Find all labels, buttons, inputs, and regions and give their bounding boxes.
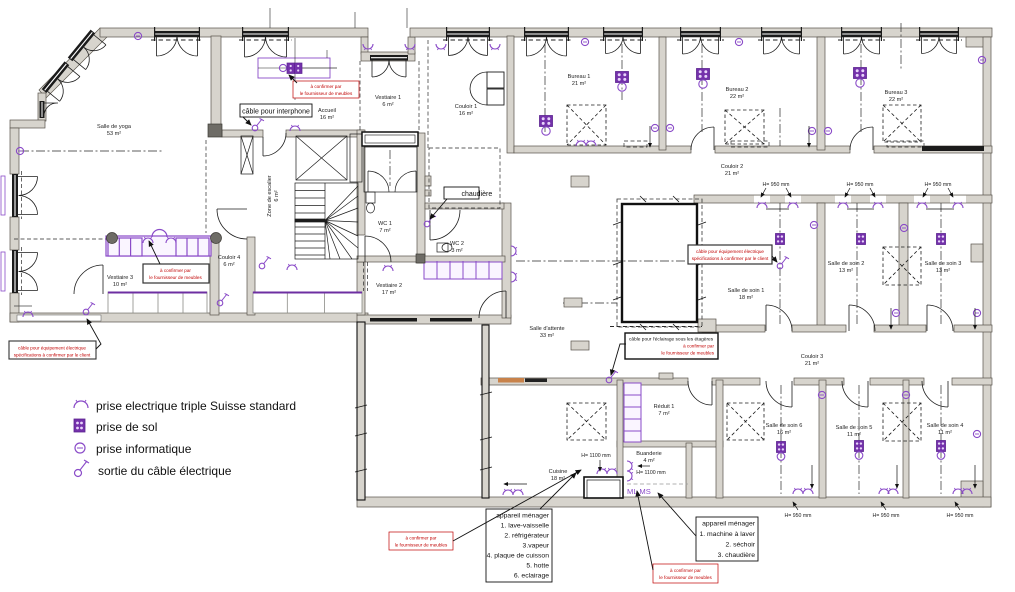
svg-text:prise de sol: prise de sol (96, 420, 157, 434)
svg-text:spécifications à confirmer par: spécifications à confirmer par le client (692, 256, 769, 261)
svg-text:H= 950 mm: H= 950 mm (847, 182, 874, 188)
svg-text:53 m²: 53 m² (107, 131, 121, 137)
svg-text:le fournisseur de meubles: le fournisseur de meubles (661, 351, 714, 356)
svg-text:à confirmer par: à confirmer par (683, 344, 714, 349)
svg-text:câble pour équipement électriq: câble pour équipement électrique (18, 346, 86, 351)
svg-text:H= 1100 mm: H= 1100 mm (636, 470, 665, 476)
svg-text:6 m²: 6 m² (223, 262, 234, 268)
svg-text:11 m²: 11 m² (938, 430, 952, 436)
svg-text:WC 1: WC 1 (378, 221, 392, 227)
svg-text:Salle de soin 2: Salle de soin 2 (828, 261, 865, 267)
svg-text:appareil ménager: appareil ménager (496, 513, 550, 520)
svg-text:à confirmer par: à confirmer par (406, 536, 437, 541)
svg-text:11 m²: 11 m² (847, 432, 861, 438)
svg-text:Salle d'attente: Salle d'attente (529, 326, 564, 332)
svg-text:H= 950 mm: H= 950 mm (925, 182, 952, 188)
svg-text:17 m²: 17 m² (382, 290, 396, 296)
svg-text:4. plaque de cuisson: 4. plaque de cuisson (487, 553, 550, 560)
svg-text:Réduit 1: Réduit 1 (654, 404, 675, 410)
svg-text:prise informatique: prise informatique (96, 442, 192, 456)
svg-text:7 m²: 7 m² (658, 411, 669, 417)
svg-text:22 m²: 22 m² (730, 94, 744, 100)
svg-text:câble pour l'éclairage sous le: câble pour l'éclairage sous les étagères (629, 337, 714, 343)
svg-text:Vestiaire 2: Vestiaire 2 (376, 283, 402, 289)
svg-text:5. hotte: 5. hotte (526, 563, 549, 570)
svg-text:6. eclairage: 6. eclairage (514, 573, 549, 580)
svg-text:18 m²: 18 m² (739, 295, 753, 301)
svg-text:Salle de soin 3: Salle de soin 3 (925, 261, 962, 267)
svg-text:prise electrique triple Suisse: prise electrique triple Suisse standard (96, 399, 296, 413)
svg-text:H= 950 mm: H= 950 mm (763, 182, 790, 188)
svg-text:3.vapeur: 3.vapeur (523, 543, 550, 550)
svg-text:Couloir 3: Couloir 3 (801, 354, 823, 360)
svg-text:Salle de yoga: Salle de yoga (97, 124, 132, 130)
svg-text:câble pour équipement électriq: câble pour équipement électrique (696, 249, 764, 254)
svg-text:4 m²: 4 m² (643, 458, 654, 464)
svg-text:H= 950 mm: H= 950 mm (947, 513, 974, 519)
svg-text:Zone de escalier: Zone de escalier (267, 175, 273, 216)
svg-text:1. lave-vaisselle: 1. lave-vaisselle (501, 523, 550, 530)
svg-text:à confirmer par: à confirmer par (311, 84, 342, 89)
svg-text:2. séchoir: 2. séchoir (726, 542, 756, 549)
svg-text:6 m²: 6 m² (274, 190, 280, 201)
svg-text:WC 2: WC 2 (450, 241, 464, 247)
svg-text:chaudière: chaudière (462, 191, 493, 198)
svg-text:Couloir 4: Couloir 4 (218, 255, 240, 261)
svg-text:Couloir 1: Couloir 1 (455, 104, 477, 110)
svg-text:2. réfrigérateur: 2. réfrigérateur (504, 533, 549, 540)
svg-text:sortie du câble électrique: sortie du câble électrique (98, 464, 232, 478)
svg-text:appareil ménager: appareil ménager (702, 521, 756, 528)
svg-text:Salle de soin 4: Salle de soin 4 (927, 423, 964, 429)
svg-text:Salle de soin 6: Salle de soin 6 (766, 423, 803, 429)
svg-text:Bureau 1: Bureau 1 (568, 74, 591, 80)
svg-text:6 m²: 6 m² (382, 102, 393, 108)
svg-text:Bureau 3: Bureau 3 (885, 90, 908, 96)
svg-text:3. chaudière: 3. chaudière (718, 552, 756, 559)
svg-text:1. machine à laver: 1. machine à laver (699, 531, 755, 538)
svg-text:Vestiaire 3: Vestiaire 3 (107, 275, 133, 281)
svg-text:Cuisine: Cuisine (549, 469, 568, 475)
svg-text:Salle de soin 1: Salle de soin 1 (728, 288, 765, 294)
svg-text:à confirmer par: à confirmer par (670, 568, 701, 573)
svg-text:Vestiaire 1: Vestiaire 1 (375, 95, 401, 101)
svg-text:13 m²: 13 m² (839, 268, 853, 274)
svg-text:16 m²: 16 m² (320, 115, 334, 121)
svg-text:21 m²: 21 m² (805, 361, 819, 367)
svg-text:le fournisseur de meubles: le fournisseur de meubles (395, 543, 448, 548)
svg-text:H= 950 mm: H= 950 mm (873, 513, 900, 519)
svg-text:7 m²: 7 m² (379, 228, 390, 234)
svg-text:18 m²: 18 m² (551, 476, 565, 482)
svg-text:à confirmer par: à confirmer par (160, 268, 191, 273)
svg-text:le fournisseur de meubles: le fournisseur de meubles (659, 575, 712, 580)
svg-text:le fournisseur de meubles: le fournisseur de meubles (149, 275, 202, 280)
svg-text:3 m²: 3 m² (451, 248, 462, 254)
svg-text:Salle de soin 5: Salle de soin 5 (836, 425, 873, 431)
svg-text:Accueil: Accueil (318, 108, 336, 114)
svg-text:Couloir 2: Couloir 2 (721, 164, 743, 170)
svg-text:16 m²: 16 m² (459, 111, 473, 117)
svg-text:10 m²: 10 m² (113, 282, 127, 288)
svg-text:21 m²: 21 m² (572, 81, 586, 87)
svg-text:22 m²: 22 m² (889, 97, 903, 103)
svg-text:H= 950 mm: H= 950 mm (785, 513, 812, 519)
svg-text:ML MS: ML MS (627, 487, 651, 496)
svg-text:le fournisseur de meubles: le fournisseur de meubles (300, 91, 353, 96)
svg-text:Bureau 2: Bureau 2 (726, 87, 749, 93)
svg-text:H= 1100 mm: H= 1100 mm (581, 453, 610, 459)
svg-text:spécifications à confirmer par: spécifications à confirmer par le client (14, 353, 91, 358)
svg-text:câble pour interphone: câble pour interphone (242, 109, 310, 116)
svg-text:13 m²: 13 m² (936, 268, 950, 274)
svg-text:Buanderie: Buanderie (636, 451, 662, 457)
svg-text:33 m²: 33 m² (540, 333, 554, 339)
svg-text:21 m²: 21 m² (725, 171, 739, 177)
svg-text:16 m²: 16 m² (777, 430, 791, 436)
